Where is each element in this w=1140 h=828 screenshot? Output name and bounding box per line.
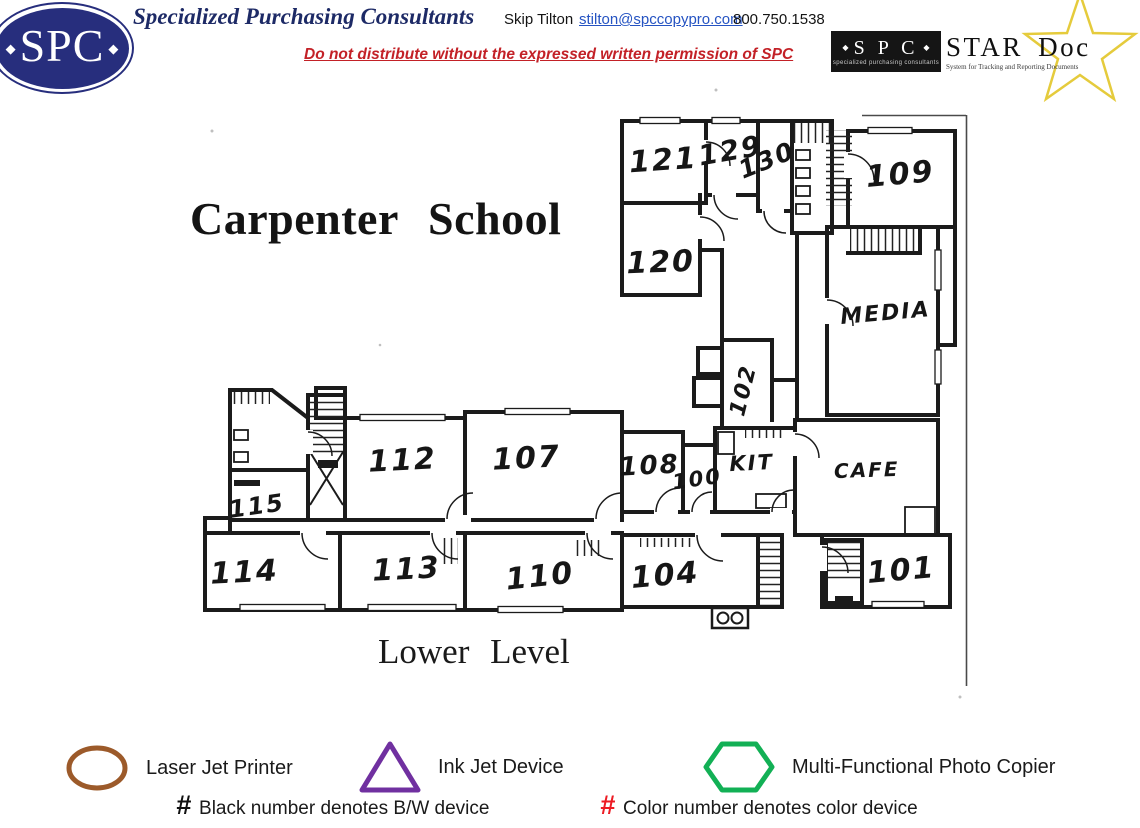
legend-note-color-text: Color number denotes color device: [623, 798, 918, 820]
document-page: 121129130109120MEDIA102115112107108100KI…: [0, 0, 1140, 828]
logo-diamond-right-icon: ◆: [108, 42, 118, 55]
plan-title: Carpenter School: [190, 192, 561, 245]
black-hash-symbol: #: [176, 792, 191, 819]
room-label-113: 113: [371, 550, 441, 589]
company-title: Specialized Purchasing Consultants: [133, 4, 474, 30]
room-label-121: 121: [628, 141, 699, 181]
legend-label-laser-jet: Laser Jet Printer: [146, 757, 293, 780]
room-label-107: 107: [491, 439, 561, 478]
contact-phone: 800.750.1538: [733, 11, 825, 28]
room-label-110: 110: [504, 556, 576, 598]
room-label-media: MEDIA: [839, 297, 931, 330]
room-label-120: 120: [626, 244, 696, 281]
legend-item-laser-jet: Laser Jet Printer: [64, 742, 293, 794]
legend-note-bw-text: Black number denotes B/W device: [199, 798, 489, 820]
distribution-warning: Do not distribute without the expressed …: [304, 46, 793, 64]
contact-name: Skip Tilton: [504, 11, 573, 28]
mfp-hexagon-icon: [702, 740, 776, 794]
stardoc-title: STAR Doc: [946, 32, 1091, 63]
room-label-kit: KIT: [729, 450, 775, 476]
stardoc-subtitle: System for Tracking and Reporting Docume…: [946, 63, 1078, 71]
legend-note-color: # Color number denotes color device: [600, 792, 918, 820]
room-label-109: 109: [864, 154, 935, 195]
legend-label-ink-jet: Ink Jet Device: [438, 756, 564, 779]
logo-text: SPC: [20, 23, 105, 73]
room-label-114: 114: [209, 553, 279, 592]
legend-item-ink-jet: Ink Jet Device: [358, 740, 564, 794]
stardoc-box-text: S P C: [854, 38, 919, 58]
room-label-102: 102: [725, 362, 762, 418]
red-hash-symbol: #: [600, 792, 615, 819]
legend-note-bw: # Black number denotes B/W device: [176, 792, 489, 820]
logo-diamond-left-icon: ◆: [6, 42, 16, 55]
stardoc-box-subtext: specialized purchasing consultants: [833, 60, 939, 66]
room-label-104: 104: [629, 555, 700, 596]
plan-level-label: Lower Level: [378, 632, 570, 672]
stardoc-spc-box: ◆ S P C ◆ specialized purchasing consult…: [831, 31, 941, 72]
contact-email-link[interactable]: stilton@spccopypro.com: [579, 11, 743, 28]
room-label-112: 112: [367, 441, 437, 480]
legend-label-mfp: Multi-Functional Photo Copier: [792, 756, 1055, 779]
stardoc-diamond-right-icon: ◆: [923, 38, 929, 58]
floor-plan: 121129130109120MEDIA102115112107108100KI…: [0, 0, 1140, 828]
ink-jet-triangle-icon: [358, 740, 422, 794]
stardoc-diamond-left-icon: ◆: [842, 38, 848, 58]
room-label-cafe: CAFE: [834, 457, 900, 483]
legend-item-mfp: Multi-Functional Photo Copier: [702, 740, 1055, 794]
laser-jet-ellipse-icon: [64, 742, 130, 794]
room-label-101: 101: [865, 550, 936, 591]
